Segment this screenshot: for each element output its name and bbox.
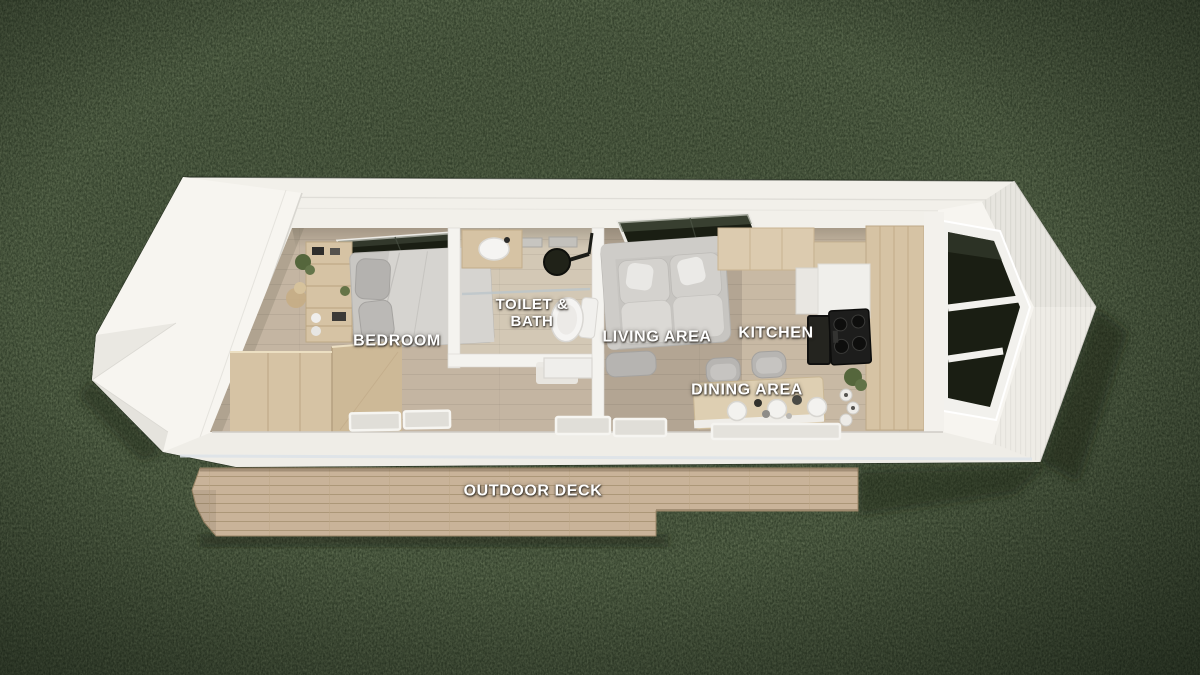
room-label-dining-area: DINING AREA <box>691 382 803 399</box>
end-wall <box>924 212 944 440</box>
render-canvas <box>0 0 1200 675</box>
room-label-outdoor-deck: OUTDOOR DECK <box>464 483 603 500</box>
upper-cabinets <box>718 228 814 270</box>
ottoman <box>605 351 656 378</box>
room-label-toilet-bath-line2: BATH <box>496 313 569 330</box>
room-label-toilet-bath-line1: TOILET & <box>496 296 569 313</box>
bath-vents <box>522 237 577 247</box>
pantry-door <box>866 226 924 430</box>
room-label-kitchen: KITCHEN <box>738 325 813 342</box>
floor-plan-render: BEDROOM TOILET & BATH LIVING AREA KITCHE… <box>0 0 1200 675</box>
room-label-living-area: LIVING AREA <box>602 329 711 346</box>
side-table <box>544 358 592 378</box>
stove-cooktop <box>829 309 872 365</box>
bath-wall-left <box>448 228 460 368</box>
room-label-toilet-bath: TOILET & BATH <box>496 296 569 330</box>
room-label-bedroom: BEDROOM <box>353 333 441 350</box>
fridge <box>796 268 818 314</box>
vanity-sink <box>462 230 522 268</box>
